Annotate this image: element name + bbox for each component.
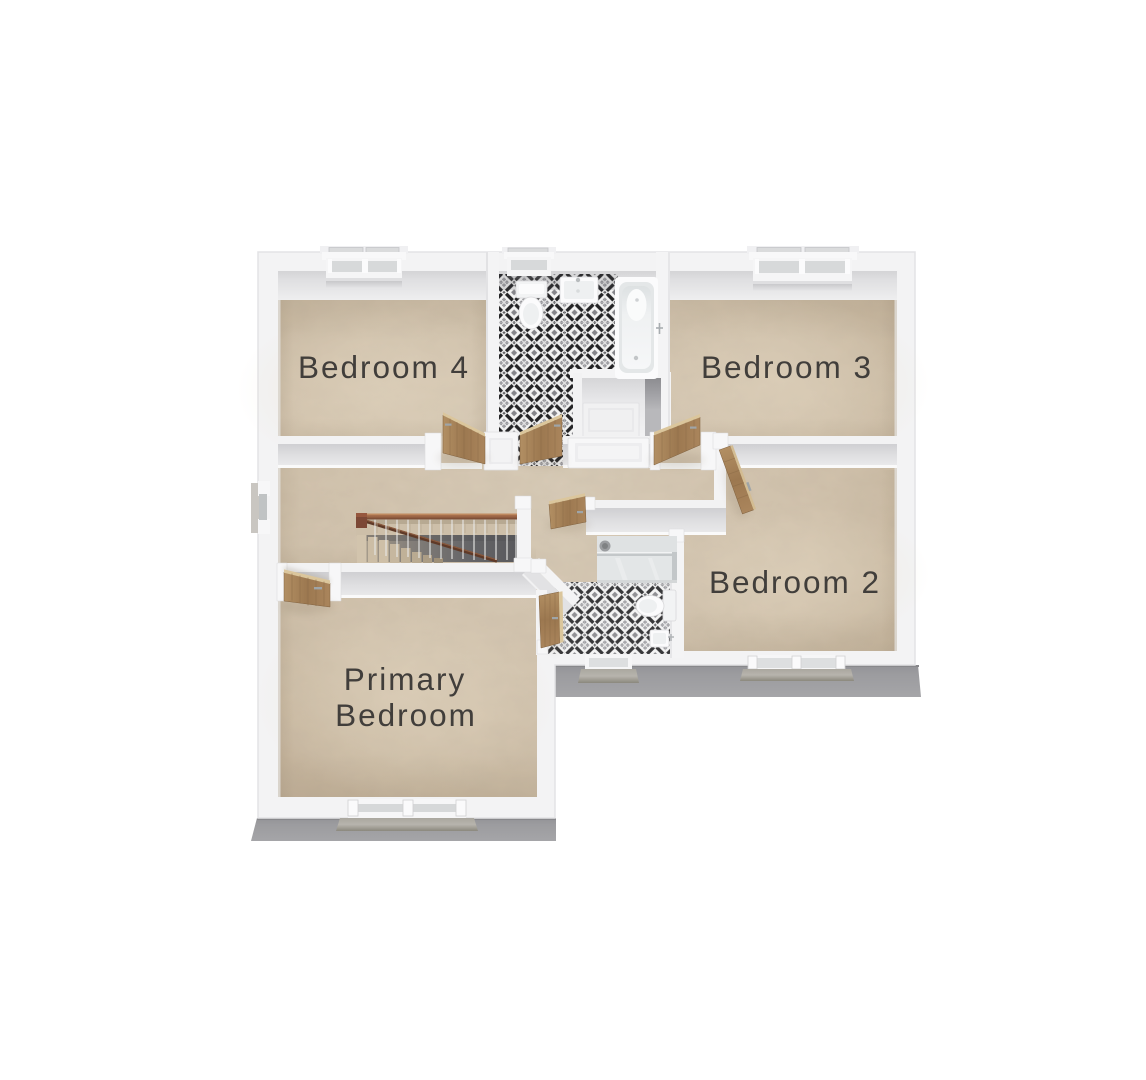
svg-text:Bedroom 3: Bedroom 3: [701, 349, 873, 385]
svg-text:Bedroom: Bedroom: [335, 697, 477, 733]
svg-text:Primary: Primary: [344, 661, 467, 697]
svg-text:Bedroom 4: Bedroom 4: [298, 349, 470, 385]
svg-text:Bedroom 2: Bedroom 2: [709, 564, 881, 600]
